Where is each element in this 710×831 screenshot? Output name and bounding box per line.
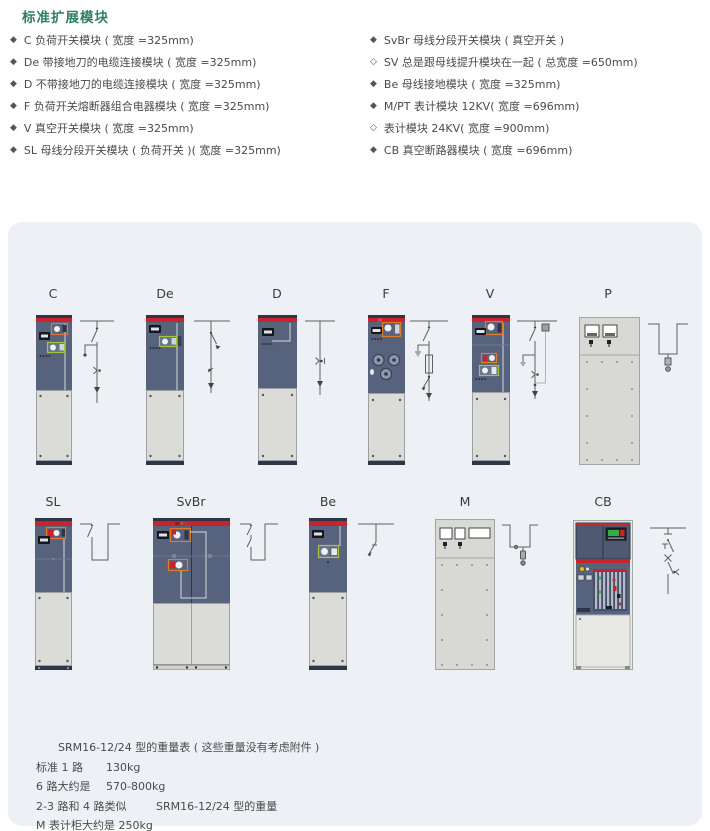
diamond-bullet-icon: ◆ (370, 79, 377, 89)
list-item: ◆C 负荷开关模块 ( 宽度 =325mm) (10, 29, 281, 51)
list-item: ◆F 负荷开关熔断器组合电器模块 ( 宽度 =325mm) (10, 95, 281, 117)
list-item-text: SL 母线分段开关模块 ( 负荷开关 )( 宽度 =325mm) (24, 142, 281, 158)
weight-label: M 表计柜大约是 250kg (36, 816, 153, 831)
cabinet-cb (573, 520, 633, 670)
diamond-bullet-icon: ◆ (10, 35, 17, 45)
diamond-bullet-icon: ◇ (370, 123, 377, 133)
weight-label: 6 路大约是 (36, 777, 106, 797)
figure-panel: C De D F V P (8, 222, 702, 826)
list-item: ◆SvBr 母线分段开关模块 ( 真空开关 ) (370, 29, 638, 51)
schematic-de (190, 315, 232, 400)
diamond-bullet-icon: ◇ (370, 57, 377, 67)
schematic-sl (80, 518, 120, 574)
list-item-text: D 不带接地刀的电缆连接模块 ( 宽度 =325mm) (24, 76, 261, 92)
list-item: ◆De 带接地刀的电缆连接模块 ( 宽度 =325mm) (10, 51, 281, 73)
diamond-bullet-icon: ◆ (10, 57, 17, 67)
cabinet-c (36, 315, 72, 465)
diamond-bullet-icon: ◆ (370, 35, 377, 45)
figure-label-sl: SL (46, 494, 61, 509)
schematic-f (408, 315, 450, 405)
list-item: ◇SV 总是跟母线提升模块在一起 ( 总宽度 =650mm) (370, 51, 638, 73)
weight-label: 2-3 路和 4 路类似 (36, 797, 156, 817)
cabinet-svbr (153, 518, 230, 670)
figure-label-svbr: SvBr (176, 494, 205, 509)
figure-label-p: P (604, 286, 612, 301)
cabinet-f (368, 315, 405, 465)
weight-value: 570-800kg (106, 780, 165, 793)
weight-value: 130kg (106, 761, 140, 774)
figure-label-cb: CB (594, 494, 611, 509)
schematic-cb (648, 520, 688, 600)
weight-label: 标准 1 路 (36, 758, 106, 778)
figure-label-be: Be (320, 494, 336, 509)
list-item: ◆D 不带接地刀的电缆连接模块 ( 宽度 =325mm) (10, 73, 281, 95)
list-item-text: SvBr 母线分段开关模块 ( 真空开关 ) (384, 32, 564, 48)
schematic-c (78, 315, 116, 410)
schematic-v (515, 315, 559, 405)
schematic-be (356, 518, 396, 568)
list-item-text: De 带接地刀的电缆连接模块 ( 宽度 =325mm) (24, 54, 256, 70)
cabinet-de (146, 315, 184, 465)
weight-row: SRM16-12/24 型的重量表 ( 这些重量没有考虑附件 ) (36, 738, 319, 758)
list-item-text: C 负荷开关模块 ( 宽度 =325mm) (24, 32, 194, 48)
figure-label-f: F (382, 286, 389, 301)
weight-value: SRM16-12/24 型的重量 (156, 800, 277, 813)
cabinet-sl (35, 518, 72, 670)
list-item-text: 表计模块 24KV( 宽度 =900mm) (384, 120, 549, 136)
weight-row: 2-3 路和 4 路类似SRM16-12/24 型的重量 (36, 797, 319, 817)
weight-table: SRM16-12/24 型的重量表 ( 这些重量没有考虑附件 ) 标准 1 路1… (36, 738, 319, 831)
list-item-text: SV 总是跟母线提升模块在一起 ( 总宽度 =650mm) (384, 54, 638, 70)
list-item: ◆SL 母线分段开关模块 ( 负荷开关 )( 宽度 =325mm) (10, 139, 281, 161)
diamond-bullet-icon: ◆ (10, 79, 17, 89)
figure-label-m: M (460, 494, 471, 509)
weight-row: 6 路大约是570-800kg (36, 777, 319, 797)
cabinet-m (435, 519, 495, 670)
list-item: ◆CB 真空断路器模块 ( 宽度 =696mm) (370, 139, 638, 161)
figure-label-c: C (49, 286, 58, 301)
weight-label: SRM16-12/24 型的重量表 ( 这些重量没有考虑附件 ) (58, 738, 319, 758)
page-title: 标准扩展模块 (22, 6, 109, 26)
diamond-bullet-icon: ◆ (10, 145, 17, 155)
list-item-text: Be 母线接地模块 ( 宽度 =325mm) (384, 76, 561, 92)
schematic-d (303, 315, 337, 405)
cabinet-v (472, 315, 510, 465)
figure-label-de: De (156, 286, 173, 301)
list-item-text: M/PT 表计模块 12KV( 宽度 =696mm) (384, 98, 580, 114)
list-item-text: F 负荷开关熔断器组合电器模块 ( 宽度 =325mm) (24, 98, 270, 114)
list-item: ◆M/PT 表计模块 12KV( 宽度 =696mm) (370, 95, 638, 117)
list-item: ◇表计模块 24KV( 宽度 =900mm) (370, 117, 638, 139)
list-item-text: V 真空开关模块 ( 宽度 =325mm) (24, 120, 194, 136)
cabinet-be (309, 518, 347, 670)
cabinet-p (579, 317, 640, 465)
schematic-m (502, 519, 538, 575)
list-item: ◆Be 母线接地模块 ( 宽度 =325mm) (370, 73, 638, 95)
list-item: ◆V 真空开关模块 ( 宽度 =325mm) (10, 117, 281, 139)
figure-label-v: V (486, 286, 495, 301)
schematic-svbr (240, 518, 278, 574)
diamond-bullet-icon: ◆ (370, 145, 377, 155)
module-list-left: ◆C 负荷开关模块 ( 宽度 =325mm) ◆De 带接地刀的电缆连接模块 (… (10, 29, 281, 161)
list-item-text: CB 真空断路器模块 ( 宽度 =696mm) (384, 142, 572, 158)
diamond-bullet-icon: ◆ (10, 101, 17, 111)
schematic-p (648, 318, 688, 374)
diamond-bullet-icon: ◆ (370, 101, 377, 111)
cabinet-d (258, 315, 297, 465)
module-list-right: ◆SvBr 母线分段开关模块 ( 真空开关 ) ◇SV 总是跟母线提升模块在一起… (370, 29, 638, 161)
catalog-page: 标准扩展模块 ◆C 负荷开关模块 ( 宽度 =325mm) ◆De 带接地刀的电… (0, 0, 710, 831)
figure-label-d: D (272, 286, 282, 301)
diamond-bullet-icon: ◆ (10, 123, 17, 133)
weight-row: 标准 1 路130kg (36, 758, 319, 778)
weight-row: M 表计柜大约是 250kg (36, 816, 319, 831)
